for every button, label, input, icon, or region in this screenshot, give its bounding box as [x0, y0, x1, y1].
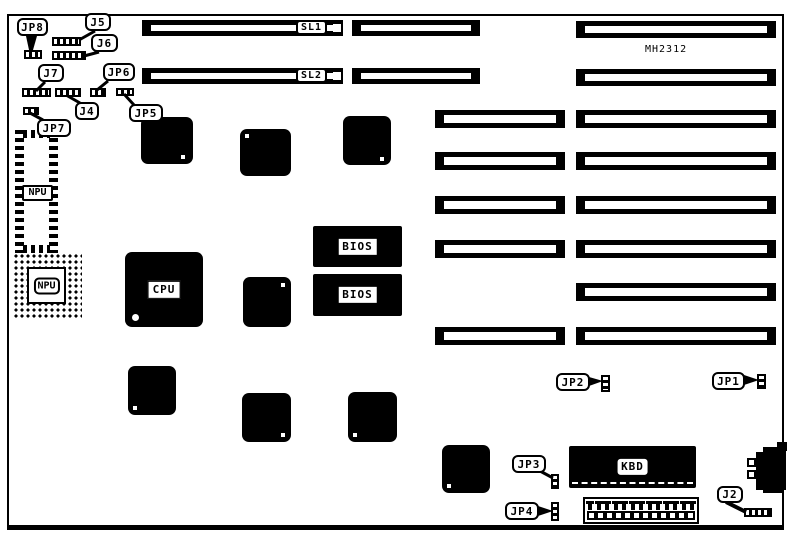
- chip-bios-top: BIOS: [313, 226, 402, 267]
- label-jp3: JP3: [512, 455, 546, 473]
- jumper-j7: [22, 88, 51, 97]
- jumper-jp6: [90, 88, 106, 97]
- slot-label-sl2: SL2: [296, 68, 327, 83]
- header-socket-hole: [668, 511, 677, 520]
- header-socket-hole: [677, 511, 686, 520]
- chip-u7: [348, 392, 397, 442]
- chip-u8: [442, 445, 490, 493]
- header-pin: [605, 501, 609, 510]
- chip-u3-pin1-dot: [380, 157, 384, 161]
- label-jp5: JP5: [129, 104, 163, 122]
- header-socket-hole: [632, 511, 641, 520]
- npu-pga-socket: NPU: [13, 253, 82, 318]
- chip-u2: [240, 129, 291, 176]
- chip-u1: [141, 117, 193, 164]
- slot-row6-left: [435, 327, 565, 345]
- slot-row6-right: [576, 327, 776, 345]
- slot-row5-right: [576, 283, 776, 301]
- din-connector-body: [756, 452, 786, 490]
- jumper-jp8: [24, 50, 42, 59]
- header-pin: [631, 501, 635, 510]
- chip-bios-bottom: BIOS: [313, 274, 402, 316]
- header-pin: [665, 501, 669, 510]
- label-jp1: JP1: [712, 372, 745, 390]
- label-jp8: JP8: [17, 18, 48, 36]
- jumper-j5: [52, 37, 81, 46]
- header-socket-hole: [686, 511, 695, 520]
- chip-kbd: KBD: [569, 446, 696, 488]
- header-socket-hole: [605, 511, 614, 520]
- header-socket-hole: [650, 511, 659, 520]
- chip-u7-pin1-dot: [353, 433, 357, 437]
- header-pin: [622, 501, 626, 510]
- chip-u1-pin1-dot: [181, 155, 185, 159]
- label-bios-bottom: BIOS: [338, 287, 377, 303]
- chip-u8-pin1-dot: [447, 484, 451, 488]
- jumper-jp4: [551, 502, 559, 521]
- jumper-jp3: [551, 474, 559, 489]
- chip-cpu: CPU: [125, 252, 203, 327]
- header-pin: [648, 501, 652, 510]
- chip-u6: [242, 393, 291, 442]
- header-pin: [690, 501, 694, 510]
- label-jp7: JP7: [37, 119, 71, 137]
- header-pin: [682, 501, 686, 510]
- label-bios-top: BIOS: [338, 238, 377, 254]
- header-socket-hole: [623, 511, 632, 520]
- label-j4: J4: [75, 102, 99, 120]
- header-pin: [673, 501, 677, 510]
- jumper-jp1: [757, 374, 766, 389]
- chip-u4: [243, 277, 291, 327]
- header-pin: [588, 501, 592, 510]
- jumper-j4: [55, 88, 81, 97]
- chip-u5-pin1-dot: [133, 406, 137, 410]
- label-j2: J2: [717, 486, 743, 503]
- motherboard-diagram: SL1 SL2 MH2312 JP8 J5 J6 J7 JP6 J4 JP5 J…: [0, 0, 791, 538]
- header-pin: [656, 501, 660, 510]
- chip-u2-pin1-dot: [245, 134, 249, 138]
- label-j7: J7: [38, 64, 64, 82]
- header-bottom-pin-row: [585, 510, 697, 520]
- header-pin: [639, 501, 643, 510]
- kbd-pin-row: [572, 482, 693, 484]
- slot-sl2-segment-c: [576, 69, 776, 86]
- header-socket-hole: [659, 511, 668, 520]
- label-j6: J6: [91, 34, 118, 52]
- chip-u6-pin1-dot: [281, 433, 285, 437]
- slot-row4-left: [435, 240, 565, 258]
- chip-cpu-pin1-dot: [132, 314, 139, 321]
- header-socket-hole: [587, 511, 596, 520]
- din-connector-pin-upper: [747, 458, 756, 467]
- din-connector-pin-lower: [747, 470, 756, 479]
- slot-label-sl1: SL1: [296, 20, 327, 35]
- label-jp6: JP6: [103, 63, 135, 81]
- label-jp2: JP2: [556, 373, 590, 391]
- label-kbd: KBD: [615, 457, 650, 477]
- slot-sl1-segment-c: [576, 21, 776, 38]
- label-jp4: JP4: [505, 502, 539, 520]
- header-connector: [583, 497, 699, 524]
- board-model-text: MH2312: [645, 45, 687, 55]
- label-npu-socket: NPU: [22, 185, 53, 201]
- jumper-jp7: [23, 107, 39, 115]
- label-npu-pga: NPU: [33, 277, 59, 294]
- slot-row3-right: [576, 196, 776, 214]
- slot-row3-left: [435, 196, 565, 214]
- header-socket-hole: [596, 511, 605, 520]
- header-socket-hole: [641, 511, 650, 520]
- slot-row2-left: [435, 152, 565, 170]
- jumper-jp5: [116, 88, 134, 96]
- header-pin: [614, 501, 618, 510]
- slot-sl2-segment-b: [352, 68, 480, 84]
- label-cpu: CPU: [148, 280, 181, 298]
- header-socket-hole: [614, 511, 623, 520]
- slot-row1-right: [576, 110, 776, 128]
- din-connector-bottom: [763, 488, 784, 493]
- chip-u4-pin1-dot: [281, 283, 285, 287]
- chip-u3: [343, 116, 391, 165]
- slot-sl1-notch: [333, 24, 341, 32]
- slot-sl2-notch: [333, 72, 341, 80]
- slot-row2-right: [576, 152, 776, 170]
- npu-pga-inner: NPU: [27, 267, 66, 304]
- label-j5: J5: [85, 13, 111, 31]
- npu-socket-bottom-band: [23, 245, 50, 253]
- jumper-j6: [52, 51, 86, 60]
- slot-sl1-segment-b: [352, 20, 480, 36]
- slot-row1-left: [435, 110, 565, 128]
- jumper-j2: [744, 508, 772, 517]
- jumper-jp2: [601, 375, 610, 392]
- slot-row4-right: [576, 240, 776, 258]
- header-top-pin-row: [585, 499, 697, 510]
- chip-u5: [128, 366, 176, 415]
- header-pin: [597, 501, 601, 510]
